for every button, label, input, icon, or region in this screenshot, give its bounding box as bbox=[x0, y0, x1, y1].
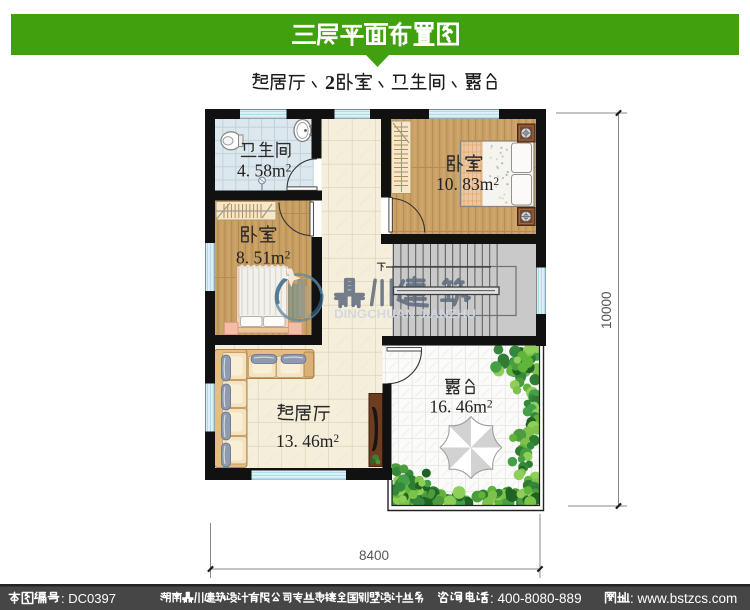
svg-text:8400: 8400 bbox=[359, 548, 389, 563]
svg-text:4. 58m2: 4. 58m2 bbox=[237, 161, 292, 181]
svg-text:10000: 10000 bbox=[599, 291, 614, 329]
svg-text:: www.bstzcs.com: : www.bstzcs.com bbox=[630, 591, 737, 606]
svg-text:8. 51m2: 8. 51m2 bbox=[236, 248, 291, 268]
svg-text:2: 2 bbox=[325, 72, 335, 94]
svg-text:: 400-8080-889: : 400-8080-889 bbox=[490, 591, 582, 606]
svg-text:16. 46m2: 16. 46m2 bbox=[430, 397, 493, 417]
svg-text:13. 46m2: 13. 46m2 bbox=[276, 431, 339, 451]
svg-text:: DC0397: : DC0397 bbox=[61, 591, 116, 606]
svg-text:DINGCHUAN JIANZHU: DINGCHUAN JIANZHU bbox=[334, 307, 476, 321]
svg-text:10. 83m2: 10. 83m2 bbox=[436, 174, 499, 194]
